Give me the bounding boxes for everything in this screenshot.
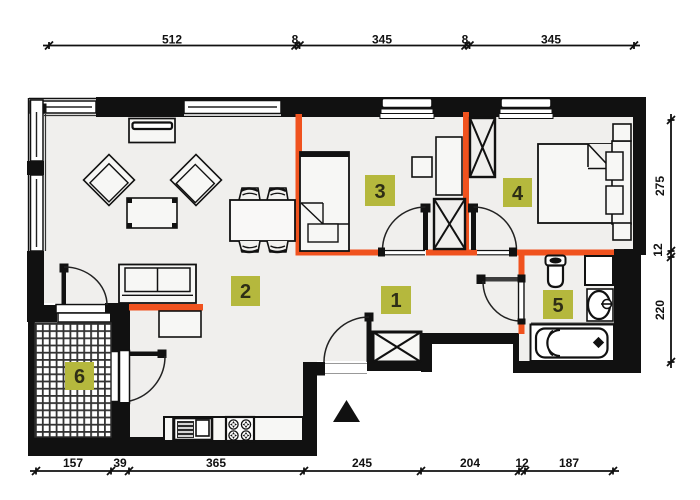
svg-text:12: 12: [651, 243, 665, 257]
svg-text:12: 12: [515, 456, 529, 470]
svg-text:345: 345: [372, 33, 392, 47]
svg-text:3: 3: [374, 181, 385, 203]
svg-text:8: 8: [292, 33, 299, 47]
svg-text:345: 345: [541, 33, 561, 47]
svg-text:4: 4: [512, 183, 524, 205]
svg-text:8: 8: [462, 33, 469, 47]
svg-text:512: 512: [162, 33, 182, 47]
svg-text:6: 6: [74, 366, 85, 388]
svg-text:245: 245: [352, 456, 372, 470]
svg-text:220: 220: [653, 300, 667, 320]
svg-text:365: 365: [206, 456, 226, 470]
svg-text:157: 157: [63, 456, 83, 470]
svg-text:204: 204: [460, 456, 480, 470]
svg-text:2: 2: [240, 281, 251, 303]
svg-text:5: 5: [552, 295, 563, 317]
svg-text:275: 275: [653, 176, 667, 196]
svg-text:39: 39: [113, 456, 127, 470]
svg-text:187: 187: [559, 456, 579, 470]
svg-text:1: 1: [390, 290, 401, 312]
